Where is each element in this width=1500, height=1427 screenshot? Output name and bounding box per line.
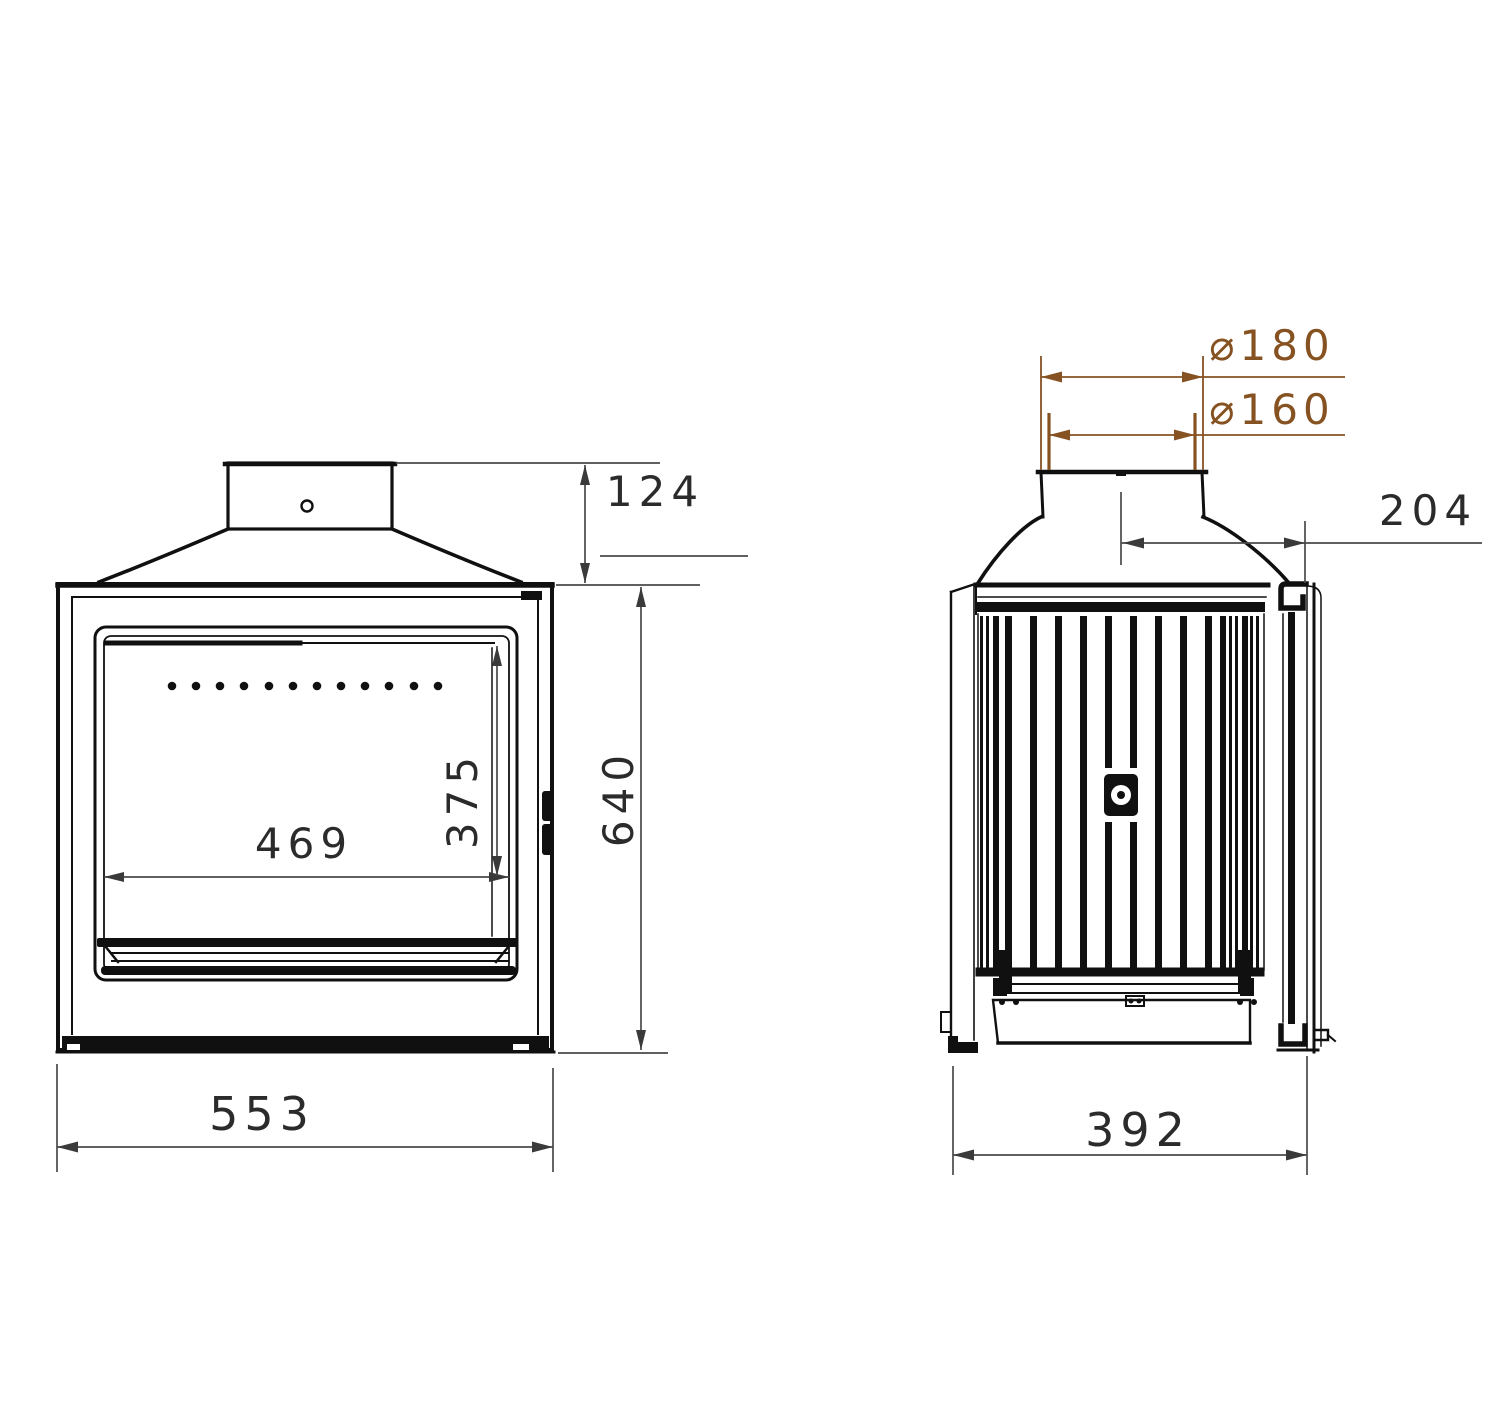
dim-flue-inner-diameter: ⌀160 bbox=[1049, 385, 1345, 470]
front-hood bbox=[99, 529, 521, 582]
side-rear-panel bbox=[941, 584, 978, 1053]
side-top-plate bbox=[976, 585, 1268, 614]
dim-overall-depth: 392 bbox=[953, 1056, 1307, 1175]
dim-204-label: 204 bbox=[1379, 486, 1477, 535]
arrow-right-icon bbox=[1284, 538, 1305, 549]
side-door-bottom-bracket bbox=[1281, 1026, 1305, 1044]
dim-160-label: ⌀160 bbox=[1209, 385, 1334, 434]
dimensions-diameter: ⌀180 ⌀160 bbox=[1041, 321, 1345, 470]
dimensions-black: 124 640 469 375 bbox=[57, 463, 1482, 1175]
side-knob bbox=[1098, 768, 1144, 822]
front-door-bottom bbox=[97, 938, 517, 975]
side-hood bbox=[978, 517, 1289, 583]
dim-640-label: 640 bbox=[594, 749, 643, 847]
dim-flue-center-to-front: 204 bbox=[1121, 486, 1482, 583]
dim-overall-height: 640 bbox=[558, 587, 668, 1053]
arrow-down-icon bbox=[636, 1030, 646, 1050]
side-flue-collar bbox=[1038, 470, 1206, 517]
dim-flue-collar-height: 124 bbox=[396, 463, 748, 585]
arrow-right-icon bbox=[1286, 1150, 1307, 1161]
arrow-left-icon bbox=[57, 1142, 78, 1153]
technical-drawing-page: 124 640 469 375 bbox=[0, 0, 1500, 1427]
front-flue-collar bbox=[225, 463, 395, 529]
arrow-down-icon bbox=[580, 563, 590, 583]
arrow-left-icon bbox=[953, 1150, 974, 1161]
dim-469-label: 469 bbox=[255, 819, 353, 868]
side-door-latch bbox=[1316, 1030, 1328, 1040]
arrow-right-icon bbox=[532, 1142, 553, 1153]
side-rear-tab bbox=[941, 1012, 951, 1032]
arrow-left-icon bbox=[104, 872, 124, 882]
front-vent-holes bbox=[168, 682, 443, 691]
arrow-up-icon bbox=[492, 646, 502, 666]
arrow-up-icon bbox=[636, 587, 646, 607]
side-door-top-bracket bbox=[1281, 584, 1306, 608]
front-collar-hole bbox=[302, 501, 313, 512]
dim-375-label: 375 bbox=[438, 751, 487, 849]
arrow-left-icon bbox=[1123, 538, 1144, 549]
arrow-down-icon bbox=[492, 856, 502, 876]
arrow-left-icon bbox=[1049, 430, 1070, 441]
dim-553-label: 553 bbox=[209, 1087, 315, 1141]
dim-392-label: 392 bbox=[1085, 1103, 1191, 1157]
arrow-right-icon bbox=[489, 872, 509, 882]
stove-dimension-drawing: 124 640 469 375 bbox=[0, 0, 1500, 1427]
dim-overall-width: 553 bbox=[57, 1064, 553, 1172]
arrow-left-icon bbox=[1041, 372, 1062, 383]
dim-180-label: ⌀180 bbox=[1209, 321, 1334, 370]
dimensions-diameter-fills: ⌀180 ⌀160 bbox=[1041, 321, 1345, 470]
side-view bbox=[941, 470, 1335, 1053]
dim-124-label: 124 bbox=[606, 467, 704, 516]
arrow-right-icon bbox=[1174, 430, 1195, 441]
arrow-right-icon bbox=[1182, 372, 1203, 383]
side-door-panel bbox=[1278, 584, 1335, 1052]
side-skirt bbox=[993, 1000, 1250, 1043]
arrow-up-icon bbox=[580, 465, 590, 485]
